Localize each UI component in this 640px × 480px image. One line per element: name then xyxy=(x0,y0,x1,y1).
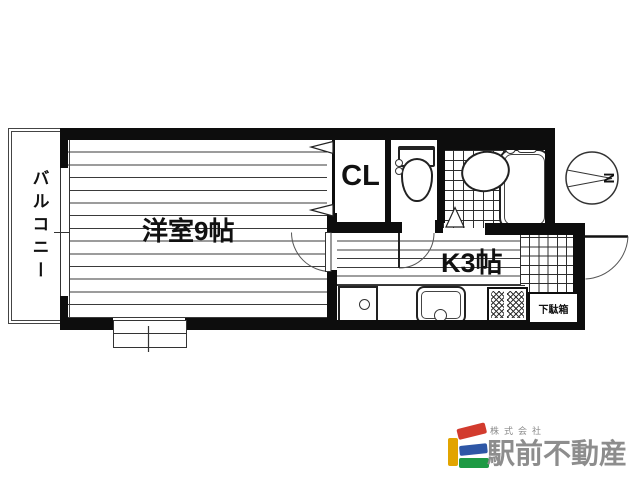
wall-closet-right xyxy=(385,140,391,225)
drain-icon xyxy=(359,299,370,310)
logo-bar-blue xyxy=(459,443,488,456)
floor-plan-page: バルコニー xyxy=(0,0,640,480)
western-room-label: 洋室9帖 xyxy=(142,211,234,248)
wall-bottom-left xyxy=(60,318,113,330)
balcony-border: バルコニー xyxy=(11,131,67,321)
shoe-cabinet-label: 下駄箱 xyxy=(539,301,569,316)
logo-bar-red xyxy=(456,422,487,440)
gas-stove xyxy=(487,287,528,322)
closet-label: CL xyxy=(336,160,385,193)
balcony-window xyxy=(60,168,70,296)
company-name-label: 駅前不動産 xyxy=(487,432,627,472)
wall-closet-left xyxy=(332,140,335,222)
compass-north-icon: N xyxy=(566,152,618,204)
company-logo: 株式会社 駅前不動産 xyxy=(444,420,634,475)
kitchen-label: K3帖 xyxy=(441,241,503,280)
wall-room-kitchen-lower xyxy=(327,270,337,330)
toilet-bowl xyxy=(401,158,433,202)
stove-divider xyxy=(504,289,507,320)
stove-burners-icon xyxy=(491,291,524,318)
kitchen-sink xyxy=(416,286,466,324)
south-window xyxy=(113,320,187,348)
wall-left-upper xyxy=(60,128,68,168)
wall-right-upper xyxy=(545,128,555,223)
bathtub-inner xyxy=(504,154,545,225)
washing-machine-pan xyxy=(338,286,378,323)
logo-bar-yellow xyxy=(448,438,458,466)
toilet-control-icon xyxy=(395,159,403,167)
wall-toilet-bath xyxy=(437,140,445,223)
balcony-label: バルコニー xyxy=(27,169,52,284)
logo-bar-green xyxy=(459,458,489,468)
compass-label: N xyxy=(600,173,617,184)
toilet-control-icon xyxy=(395,167,403,175)
wall-closet-bottom xyxy=(327,222,402,233)
wall-entrance-top xyxy=(485,223,585,235)
wall-bath-corner xyxy=(435,220,443,233)
wall-bath-top xyxy=(437,128,555,150)
entrance-door-swing xyxy=(586,237,629,280)
shoe-cabinet: 下駄箱 xyxy=(528,292,579,324)
wall-bottom-center xyxy=(185,318,337,330)
window-mullion xyxy=(114,333,186,334)
